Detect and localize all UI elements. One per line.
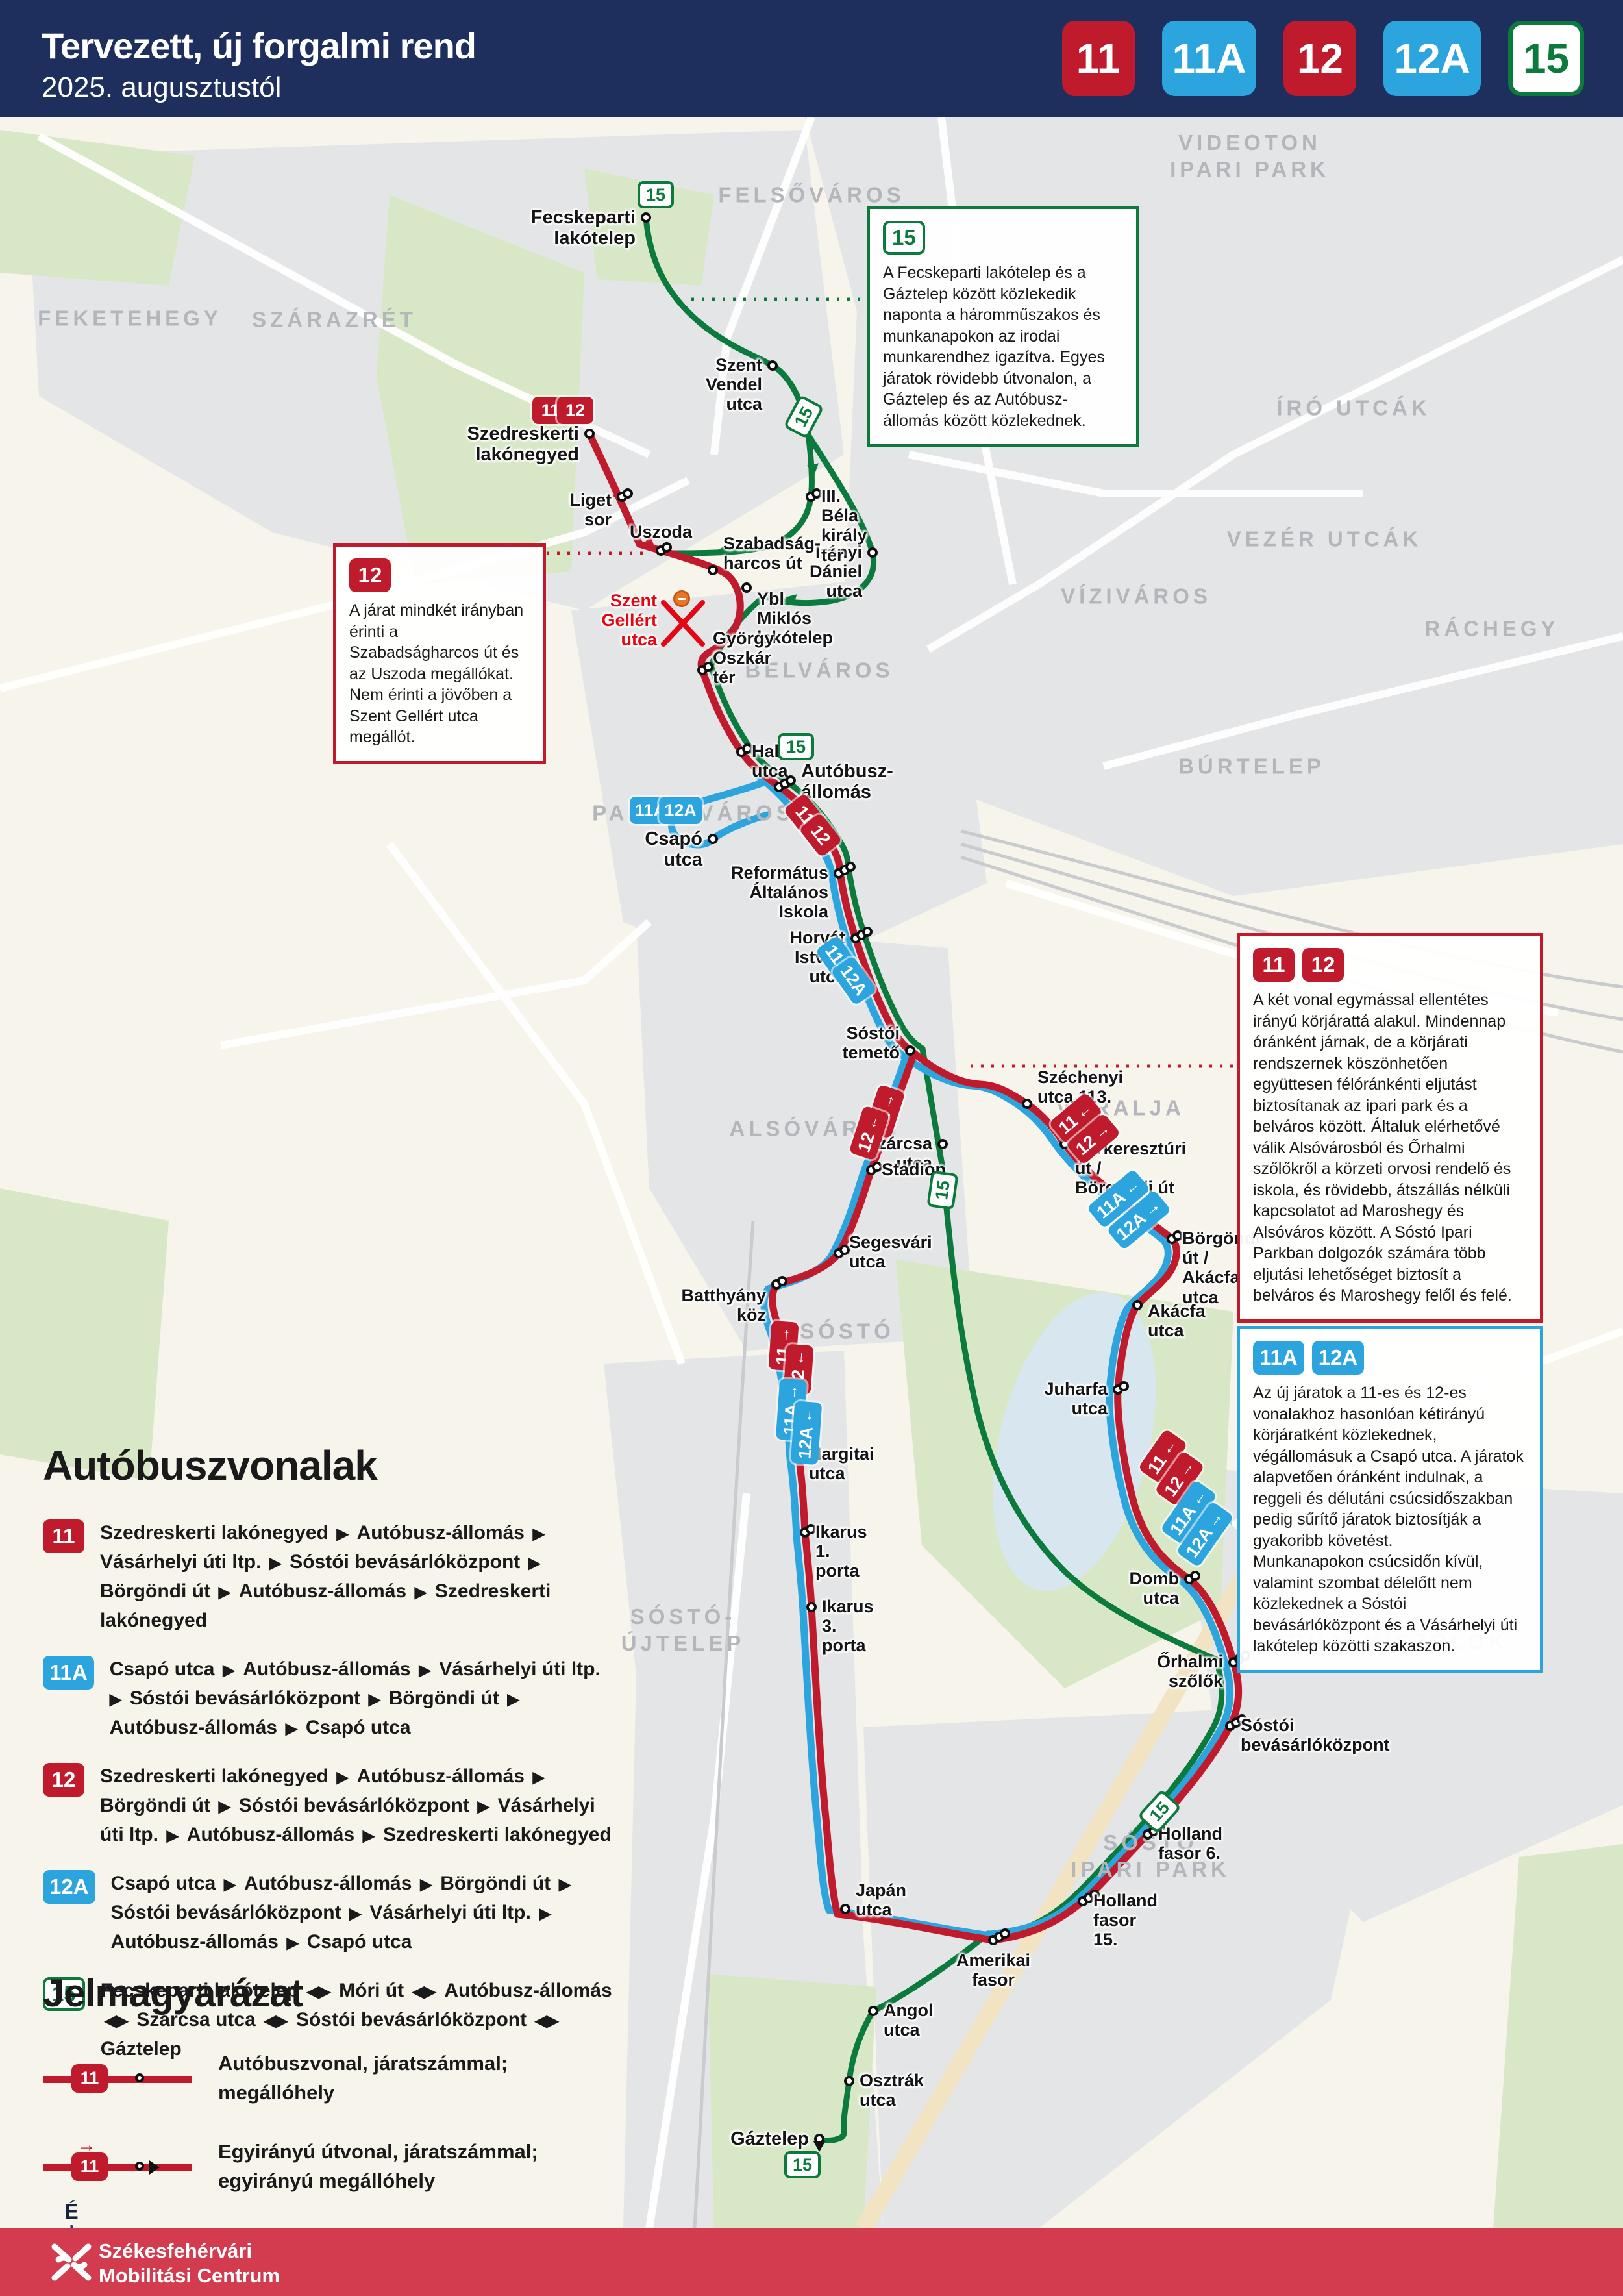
page-subtitle: 2025. augusztustól: [42, 71, 281, 104]
legend-list: 11Autóbuszvonal, járatszámmal; megállóhe…: [43, 2049, 627, 2228]
stop-dot: [937, 1139, 948, 1149]
stop-dot: [1132, 1300, 1143, 1310]
stop-label: Uszoda: [630, 522, 692, 542]
info-badge-12A: 12A: [1312, 1341, 1365, 1375]
stop-dot: [786, 775, 796, 786]
stop-label: Ikarus 1. porta: [815, 1522, 867, 1581]
stop-label: Holland fasor 15.: [1093, 1891, 1158, 1950]
stop-dot: [905, 1045, 915, 1056]
info-box-11a-12a-text: Az új járatok a 11-es és 12-es vonalakho…: [1253, 1382, 1527, 1657]
page-title: Tervezett, új forgalmi rend: [42, 25, 476, 67]
info-box-11-12: 1112 A két vonal egymással ellentétes ir…: [1237, 933, 1543, 1323]
stop-label: Juharfa utca: [1044, 1379, 1108, 1418]
route-item-stops: Csapó utca ▶ Autóbusz-állomás ▶ Börgöndi…: [111, 1869, 614, 1956]
route-item-stops: Csapó utca ▶ Autóbusz-állomás ▶ Vásárhel…: [110, 1654, 614, 1742]
info-badge-15: 15: [883, 221, 925, 255]
info-box-15-badges: 15: [883, 221, 1123, 255]
area-label: ÍRÓ UTCÁK: [1276, 394, 1430, 421]
stop-label: Amerikai fasor: [956, 1951, 1030, 1990]
stop-dot: [839, 1245, 850, 1255]
stop-label: Holland fasor 6.: [1158, 1824, 1222, 1863]
legend-item-label: Egyirányú útvonal, járatszámmal; egyirán…: [218, 2138, 538, 2196]
info-box-11a-12a-badges: 11A12A: [1253, 1341, 1527, 1375]
stop-dot: [806, 1602, 817, 1612]
stop-label: Szent Vendel utca: [706, 355, 762, 414]
info-box-11-12-text: A két vonal egymással ellentétes irányú …: [1253, 990, 1527, 1306]
route-item-11: 11Szedreskerti lakónegyed ▶ Autóbusz-áll…: [43, 1518, 614, 1635]
stop-dot: [641, 212, 651, 223]
stop-label: Fecskeparti lakótelep: [531, 207, 636, 249]
stop-dot: [867, 547, 878, 558]
stop-dot: [708, 565, 718, 575]
stop-label: Szabadság- harcos út: [723, 534, 821, 573]
footer: Székesfehérvári Mobilitási Centrum: [0, 2228, 1623, 2296]
info-badge-11: 11: [1253, 948, 1295, 982]
info-box-12-badges: 12: [349, 558, 530, 592]
stop-dot: [811, 488, 822, 499]
stop-label: III. Béla király tér: [821, 486, 867, 565]
stop-label: Japán utca: [856, 1880, 906, 1919]
route-item-stops: Szedreskerti lakónegyed ▶ Autóbusz-állom…: [100, 1762, 614, 1849]
north-label: É: [55, 2200, 88, 2224]
area-label: VEZÉR UTCÁK: [1227, 525, 1422, 552]
legend-item-1: →11Egyirányú útvonal, járatszámmal; egyi…: [43, 2138, 627, 2196]
stop-label: György Oszkár tér: [713, 629, 774, 688]
line-badge-15: 15: [784, 2151, 821, 2178]
info-paragraph: A járat mindkét irányban érinti a Szabad…: [349, 600, 530, 748]
stop-dot: [741, 582, 752, 593]
stop-dot: [868, 2006, 878, 2016]
stop-dot: [1119, 1381, 1129, 1391]
stop-label: Gáztelep: [730, 2128, 809, 2149]
header-route-badge-11A: 11A: [1162, 21, 1257, 96]
info-paragraph: Az új járatok a 11-es és 12-es vonalakho…: [1253, 1382, 1527, 1551]
stop-label: Osztrák utca: [860, 2071, 924, 2110]
route-item-badge-11A: 11A: [43, 1656, 94, 1690]
route-item-badge-12A: 12A: [43, 1870, 95, 1904]
area-label: FEKETEHEGY: [38, 305, 222, 331]
line-badge-15: 15: [778, 733, 814, 760]
area-label: VIDEOTON IPARI PARK: [1170, 129, 1330, 183]
info-paragraph: Munkanapokon csúcsidőn kívül, valamint s…: [1253, 1551, 1527, 1657]
info-box-15: 15 A Fecskeparti lakótelep és a Gáztelep…: [867, 206, 1139, 447]
footer-org-name: Székesfehérvári Mobilitási Centrum: [99, 2239, 280, 2288]
routes-panel-title: Autóbuszvonalak: [43, 1441, 614, 1490]
stop-dot: [806, 1524, 816, 1534]
legend-badge: 11: [71, 2064, 108, 2093]
info-paragraph: A Fecskeparti lakótelep és a Gáztelep kö…: [883, 262, 1123, 431]
stop-dot: [1172, 1230, 1183, 1241]
route-item-badge-11: 11: [43, 1519, 84, 1553]
line-badge-12: 12: [557, 397, 593, 424]
stop-label: Őrhalmi szőlők: [1157, 1652, 1223, 1691]
map-canvas[interactable]: FEKETEHEGYSZÁRAZRÉTFELSŐVÁROSVIDEOTON IP…: [0, 117, 1623, 2228]
area-label: RÁCHEGY: [1424, 615, 1559, 642]
area-label: SÓSTÓ- ÚJTELEP: [621, 1603, 745, 1657]
header-route-badge-11: 11: [1062, 21, 1135, 96]
route-item-badge-12: 12: [43, 1763, 84, 1797]
stop-dot: [844, 2076, 854, 2086]
area-label: BÚRTELEP: [1178, 753, 1325, 779]
stop-dot: [1190, 1571, 1200, 1581]
stop-dot: [845, 862, 856, 872]
line-badge-12A: 12A←: [791, 1401, 823, 1465]
legend-item-0: 11Autóbuszvonal, járatszámmal; megállóhe…: [43, 2049, 627, 2108]
stop-label: Akácfa utca: [1148, 1301, 1206, 1340]
info-box-11a-12a: 11A12A Az új járatok a 11-es és 12-es vo…: [1237, 1326, 1543, 1673]
line-badge-15: 15: [638, 181, 674, 208]
stop-label: Domb utca: [1130, 1569, 1180, 1608]
legend-panel: Jelmagyarázat 11Autóbuszvonal, járatszám…: [43, 1971, 627, 2228]
stop-label: Segesvári utca: [849, 1232, 932, 1271]
legend-line-sample: 11: [43, 2058, 192, 2099]
line-badge-12A: 12A: [659, 797, 702, 824]
stop-dot: [862, 927, 873, 937]
stop-dot: [1000, 1928, 1010, 1939]
area-label: SZÁRAZRÉT: [252, 306, 417, 332]
stop-label: Sóstói bevásárlóközpont: [1241, 1716, 1390, 1754]
info-badge-12: 12: [349, 558, 391, 592]
stop-dot: [840, 1904, 850, 1914]
north-indicator: É: [55, 2200, 88, 2228]
legend-badge: 11: [71, 2152, 108, 2181]
legend-item-label: Autóbuszvonal, járatszámmal; megállóhely: [218, 2049, 508, 2108]
line-badge-15: 15: [926, 1170, 958, 1210]
stop-dot: [708, 834, 718, 844]
footer-org-line2: Mobilitási Centrum: [99, 2264, 280, 2288]
header-badges: 1111A1212A15: [1062, 21, 1584, 96]
route-item-12A: 12ACsapó utca ▶ Autóbusz-állomás ▶ Börgö…: [43, 1869, 614, 1956]
legend-line-sample: →11: [43, 2146, 192, 2188]
info-box-12: 12 A járat mindkét irányban érinti a Sza…: [333, 543, 546, 764]
info-badge-12: 12: [1302, 948, 1344, 982]
legend-title: Jelmagyarázat: [43, 1971, 627, 2015]
header-route-badge-12A: 12A: [1383, 21, 1480, 96]
info-box-12-text: A járat mindkét irányban érinti a Szabad…: [349, 600, 530, 748]
stop-dot: [777, 1276, 787, 1286]
stop-dot: [1022, 1099, 1032, 1109]
stop-label: Szedreskerti lakónegyed: [467, 423, 580, 466]
stop-dot: [662, 542, 672, 553]
stop-label: Ikarus 3. porta: [822, 1597, 874, 1656]
header: Tervezett, új forgalmi rend 2025. augusz…: [0, 0, 1623, 117]
construction-warning-icon: [673, 590, 690, 607]
route-item-12: 12Szedreskerti lakónegyed ▶ Autóbusz-áll…: [43, 1762, 614, 1849]
poster-page: Tervezett, új forgalmi rend 2025. augusz…: [0, 0, 1623, 2296]
area-label: SÓSTÓ: [800, 1317, 895, 1344]
info-badge-11A: 11A: [1253, 1341, 1304, 1375]
header-route-badge-15: 15: [1508, 21, 1584, 96]
area-label: FELSŐVÁROS: [718, 181, 904, 208]
header-route-badge-12: 12: [1283, 21, 1356, 96]
route-item-11A: 11ACsapó utca ▶ Autóbusz-állomás ▶ Vásár…: [43, 1654, 614, 1742]
stop-label: Angol utca: [884, 2001, 933, 2040]
stop-dot: [703, 662, 713, 672]
info-box-15-text: A Fecskeparti lakótelep és a Gáztelep kö…: [883, 262, 1123, 431]
mobility-centre-logo-icon: [49, 2240, 93, 2284]
info-paragraph: A két vonal egymással ellentétes irányú …: [1253, 990, 1527, 1306]
stop-dot: [872, 1162, 882, 1172]
stop-label: Autóbusz-állomás: [801, 761, 893, 803]
route-item-stops: Szedreskerti lakónegyed ▶ Autóbusz-állom…: [100, 1518, 614, 1635]
stop-label: Református Általános Iskola: [731, 863, 828, 922]
stop-dot: [767, 360, 778, 371]
north-arrow-icon: [55, 2224, 88, 2228]
stop-label: Csapó utca: [645, 829, 702, 871]
stop-dot: [623, 488, 633, 499]
stop-dot: [584, 429, 595, 439]
stop-label: Liget sor: [570, 490, 612, 529]
footer-org-line1: Székesfehérvári: [99, 2239, 280, 2264]
stop-label: Batthyány köz: [681, 1286, 766, 1325]
area-label: VÍZIVÁROS: [1061, 582, 1211, 609]
stop-dot: [742, 743, 752, 754]
stop-label: Sóstói temető: [842, 1023, 900, 1062]
info-box-11-12-badges: 1112: [1253, 948, 1527, 982]
stop-pin-icon: [813, 2141, 825, 2152]
stop-label: Szent Gellért utca: [601, 591, 657, 650]
